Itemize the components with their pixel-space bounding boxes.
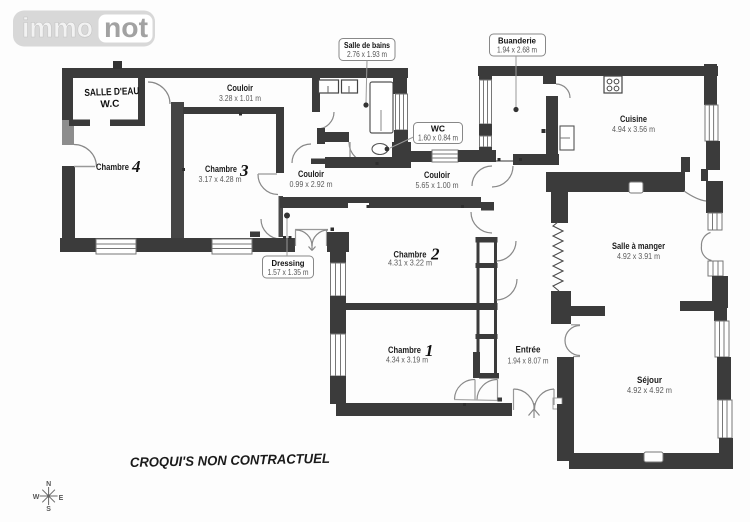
svg-text:Chambre: Chambre: [205, 164, 237, 175]
svg-text:W.C: W.C: [100, 99, 119, 111]
svg-text:Chambre: Chambre: [96, 162, 129, 173]
svg-text:3.17 x 4.28 m: 3.17 x 4.28 m: [199, 175, 242, 184]
svg-text:Salle à manger: Salle à manger: [612, 241, 665, 252]
svg-text:4.92 x 3.91 m: 4.92 x 3.91 m: [617, 252, 660, 261]
svg-text:1.94 x 8.07 m: 1.94 x 8.07 m: [508, 357, 549, 366]
svg-text:SALLE D'EAU: SALLE D'EAU: [84, 86, 139, 99]
svg-text:WC: WC: [431, 124, 445, 134]
svg-text:Dressing: Dressing: [272, 258, 305, 268]
svg-text:not: not: [104, 12, 148, 43]
svg-text:Couloir: Couloir: [298, 169, 324, 180]
svg-text:W: W: [33, 494, 40, 501]
svg-text:Couloir: Couloir: [424, 170, 450, 181]
svg-text:Cuisine: Cuisine: [620, 114, 647, 125]
svg-text:E: E: [59, 495, 64, 502]
svg-text:1.94 x 2.68 m: 1.94 x 2.68 m: [497, 46, 537, 55]
svg-text:0.99 x 2.92 m: 0.99 x 2.92 m: [290, 180, 333, 189]
svg-text:4.94 x 3.56 m: 4.94 x 3.56 m: [612, 125, 655, 134]
svg-text:Buanderie: Buanderie: [498, 36, 536, 46]
svg-text:N: N: [46, 481, 51, 488]
svg-text:Séjour: Séjour: [637, 375, 662, 386]
svg-text:4: 4: [131, 157, 141, 176]
svg-text:4.92 x 4.92 m: 4.92 x 4.92 m: [627, 386, 672, 395]
svg-text:4.34 x 3.19 m: 4.34 x 3.19 m: [386, 356, 428, 365]
svg-text:2.76 x 1.93 m: 2.76 x 1.93 m: [347, 50, 387, 59]
svg-text:1.57 x 1.35 m: 1.57 x 1.35 m: [268, 268, 309, 277]
svg-text:Entrée: Entrée: [516, 345, 541, 356]
svg-text:Salle de bains: Salle de bains: [344, 40, 390, 50]
svg-text:4.31 x 3.22 m: 4.31 x 3.22 m: [388, 259, 432, 268]
svg-text:immo: immo: [22, 12, 93, 43]
svg-text:1.60 x 0.84 m: 1.60 x 0.84 m: [418, 134, 458, 143]
svg-text:3.28 x 1.01 m: 3.28 x 1.01 m: [219, 94, 261, 103]
svg-text:Chambre: Chambre: [388, 345, 421, 356]
svg-text:S: S: [46, 506, 51, 513]
svg-text:5.65 x 1.00 m: 5.65 x 1.00 m: [416, 181, 459, 190]
svg-text:Couloir: Couloir: [227, 83, 253, 94]
